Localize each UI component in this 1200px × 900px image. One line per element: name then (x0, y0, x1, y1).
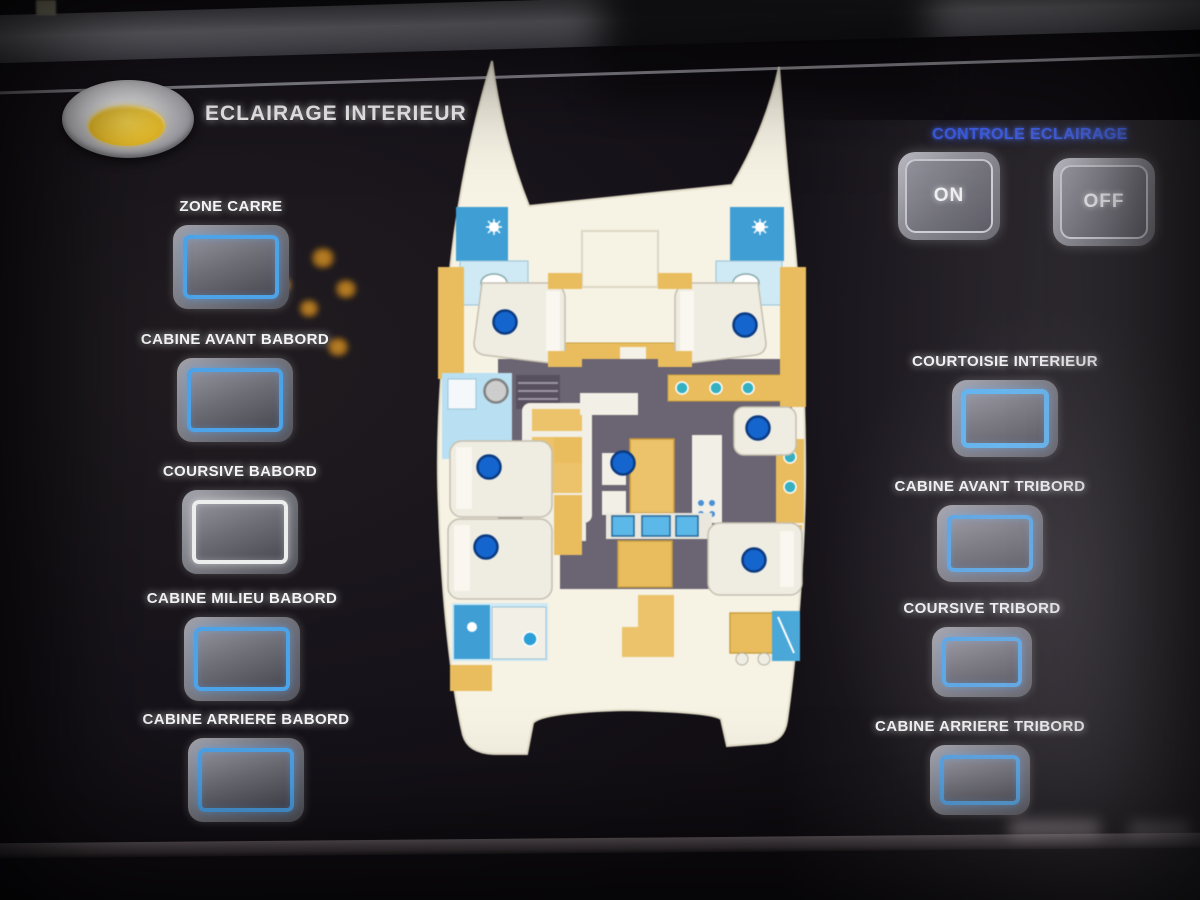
zone-widget-zone-carre: ZONE CARRE (131, 198, 331, 309)
zone-button-face (940, 755, 1020, 805)
lights-on-button[interactable]: ON (898, 152, 1000, 240)
zone-button-face (194, 627, 290, 691)
reflection-glow (1010, 820, 1100, 838)
zone-label: CABINE AVANT BABORD (141, 331, 329, 348)
reflection-glow (1130, 822, 1190, 838)
light-indicator-coursive-babord (485, 380, 508, 403)
cabine-arriere-babord-button[interactable] (188, 738, 304, 822)
zone-widget-cabine-arriere-babord: CABINE ARRIERE BABORD (146, 711, 346, 822)
zone-button-face (942, 637, 1022, 687)
zone-widget-cabine-avant-tribord: CABINE AVANT TRIBORD (890, 478, 1090, 582)
zone-label: CABINE ARRIERE TRIBORD (875, 718, 1085, 735)
ceiling-light-reflection (334, 280, 358, 298)
off-button-label: OFF (1084, 191, 1125, 213)
lights-off-button[interactable]: OFF (1053, 158, 1155, 246)
zone-widget-cabine-avant-babord: CABINE AVANT BABORD (135, 331, 335, 442)
zone-widget-cabine-arriere-tribord: CABINE ARRIERE TRIBORD (880, 718, 1080, 815)
zone-label: COURSIVE BABORD (163, 463, 317, 480)
cabine-avant-tribord-button[interactable] (937, 505, 1043, 582)
zone-carre-button[interactable] (173, 225, 289, 309)
zone-button-face (198, 748, 294, 812)
downlight-bulb (88, 105, 165, 146)
zone-widget-coursive-babord: COURSIVE BABORD (140, 463, 340, 574)
lights-off-button-face: OFF (1060, 165, 1148, 239)
zone-button-face (192, 500, 288, 564)
light-indicator-cabine-avant-babord (494, 311, 517, 334)
zone-label: COURTOISIE INTERIEUR (912, 353, 1098, 370)
zone-widget-cabine-milieu-babord: CABINE MILIEU BABORD (142, 590, 342, 701)
light-indicator-cabine-milieu-babord (478, 456, 501, 479)
zone-label: CABINE AVANT TRIBORD (894, 478, 1085, 495)
zone-label: CABINE MILIEU BABORD (147, 590, 338, 607)
control-panel-title: CONTROLE ECLAIRAGE (930, 126, 1130, 144)
light-indicator-cabine-arriere-tribord (743, 549, 766, 572)
courtoisie-interieur-button[interactable] (952, 380, 1058, 457)
on-button-label: ON (934, 185, 965, 207)
zone-button-face (961, 389, 1049, 448)
light-indicator-cabine-arriere-babord (475, 536, 498, 559)
zone-button-face (187, 368, 283, 432)
zone-button-face (183, 235, 279, 299)
cabine-avant-babord-button[interactable] (177, 358, 293, 442)
cabine-milieu-babord-button[interactable] (184, 617, 300, 701)
light-indicator-coursive-tribord (747, 417, 770, 440)
coursive-babord-button[interactable] (182, 490, 298, 574)
zone-label: CABINE ARRIERE BABORD (142, 711, 349, 728)
lights-on-button-face: ON (905, 159, 993, 233)
zone-widget-courtoisie-interieur: COURTOISIE INTERIEUR (905, 353, 1105, 457)
screen-photo: ECLAIRAGE INTERIEUR CONTROLE ECLAIRAGE O… (0, 0, 1200, 900)
zone-label: COURSIVE TRIBORD (903, 600, 1060, 617)
zone-widget-coursive-tribord: COURSIVE TRIBORD (882, 600, 1082, 697)
page-title: ECLAIRAGE INTERIEUR (205, 102, 467, 126)
ceiling-downlight-icon (62, 80, 194, 158)
catamaran-floorplan (430, 55, 810, 765)
reflection-chip (36, 0, 56, 15)
light-indicator-zone-carre (612, 452, 635, 475)
zone-label: ZONE CARRE (179, 198, 282, 215)
light-indicator-cabine-avant-tribord (734, 314, 757, 337)
coursive-tribord-button[interactable] (932, 627, 1032, 697)
cabine-arriere-tribord-button[interactable] (930, 745, 1030, 815)
zone-button-face (947, 515, 1033, 572)
